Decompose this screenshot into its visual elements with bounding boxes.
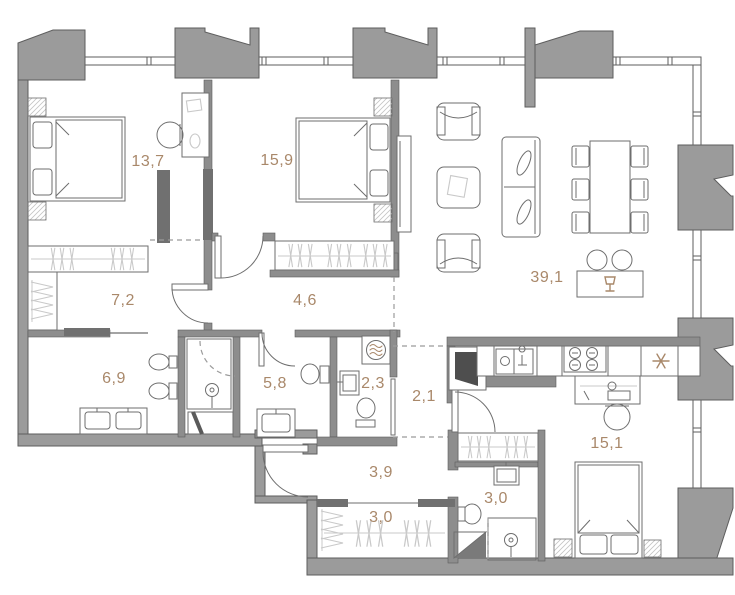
wall-bedroom3-left [538, 430, 545, 561]
room-area-label-living: 39,1 [530, 269, 563, 286]
door-leaf-entrance [263, 445, 308, 452]
window-top-3 [437, 57, 525, 65]
kitchen-furniture [449, 346, 700, 430]
door-arc-closet72 [172, 287, 208, 323]
door-arc-bedroom2 [221, 236, 263, 278]
pillow [33, 169, 52, 195]
window-right-1 [693, 65, 701, 145]
wall-laundry-left [330, 337, 337, 437]
floor-plan: 13,7 15,9 39,1 7,2 4,6 6,9 5,8 2,3 2,1 3… [0, 0, 735, 595]
pillar-top-2 [175, 28, 259, 78]
floor-plan-page: 13,7 15,9 39,1 7,2 4,6 6,9 5,8 2,3 2,1 3… [0, 0, 735, 595]
toilet-tank [356, 420, 375, 427]
bidet-tap [169, 356, 177, 368]
nightstand-icon [374, 98, 392, 116]
sliding-door-closet-right [418, 499, 455, 507]
wall-bottom-thin [317, 437, 397, 446]
bottom-wall-lower [307, 558, 733, 575]
room-area-label-bedroom-3: 15,1 [590, 435, 623, 452]
nightstand-icon [28, 98, 46, 116]
pillow [580, 535, 607, 554]
bathroom-1-fixtures [80, 354, 177, 434]
dining-table-icon [590, 141, 630, 233]
dining-chair-icon [572, 146, 589, 167]
nightstand-icon [374, 204, 392, 222]
dining-chair-icon [631, 179, 648, 200]
toilet-tank [458, 507, 465, 521]
clothes-side-icon [321, 509, 343, 551]
nightstand-icon [28, 202, 46, 220]
bathroom-2-fixtures [187, 339, 329, 437]
tv-panel-icon [397, 136, 411, 232]
bar-stool-icon [587, 250, 607, 270]
dining-chair-icon [572, 212, 589, 233]
pillar-right-1 [678, 145, 733, 230]
pillow [370, 124, 388, 150]
door-leaf-bedroom3 [452, 390, 458, 432]
dining-chair-icon [631, 212, 648, 233]
shower-head-icon [505, 534, 518, 547]
bidet-icon [149, 354, 169, 370]
sliding-door-bathroom-1 [64, 328, 110, 336]
door-arc-bathroom2 [262, 333, 295, 366]
bar-stool-icon [612, 250, 632, 270]
shower-door-arc [200, 341, 235, 376]
toilet-tank [320, 366, 329, 383]
nightstand-icon [554, 539, 572, 557]
wall-bath-top-left [178, 330, 262, 337]
pocket-door-panel-right [203, 169, 213, 240]
desk-chair-icon [604, 404, 630, 430]
door-arc-entrance [263, 452, 308, 497]
door-arc-bedroom3 [455, 392, 495, 432]
room-area-label-bathroom-2: 5,8 [263, 375, 287, 392]
room-area-label-bedroom-1: 13,7 [131, 153, 164, 170]
coffee-table-icon [437, 167, 480, 208]
nightstand-icon [644, 540, 661, 557]
window-top-2 [259, 57, 353, 65]
wall-stub-bedroom2-right [263, 233, 275, 241]
room-area-label-bathroom-1: 6,9 [102, 370, 126, 387]
dining-chair-icon [631, 146, 648, 167]
pillar-top-3 [353, 28, 437, 78]
wall-laundry-right [390, 330, 397, 377]
bottom-wall-upper-left [18, 434, 262, 446]
pillow [611, 535, 638, 554]
wall-under-wardrobe [270, 270, 399, 277]
bedroom-2-furniture [275, 98, 411, 270]
sliding-door-closet-left [317, 499, 348, 507]
shower-head-center [509, 538, 513, 542]
toilet-icon [463, 504, 481, 524]
pocket-door-panel-left [157, 170, 170, 243]
pillar-top-4 [535, 31, 613, 78]
room-area-label-corridor-1: 2,1 [412, 388, 436, 405]
room-area-label-laundry: 2,3 [361, 375, 385, 392]
bedroom-1-furniture [28, 93, 209, 220]
pillar-top-1 [18, 30, 85, 80]
closet-left-wall [307, 500, 317, 558]
left-exterior-wall [18, 80, 28, 446]
window-right-2 [693, 230, 701, 318]
wall-kitchen-top [447, 337, 700, 346]
shower-stall-icon [187, 339, 231, 409]
pillow [33, 122, 52, 148]
toilet-icon [301, 364, 319, 384]
closet-72-furniture [28, 246, 148, 330]
room-area-label-closet: 3,0 [369, 509, 393, 526]
toilet-icon [357, 398, 375, 418]
desk-chair-icon [157, 122, 183, 148]
room-area-label-corridor-2: 3,9 [369, 464, 393, 481]
shower-head-center [210, 388, 214, 392]
window-top-1 [85, 57, 175, 65]
door-leaf-bedroom2 [215, 236, 221, 278]
door-leaf-laundry [391, 379, 395, 435]
room-area-label-walk-in-closet: 7,2 [111, 292, 135, 309]
shower-head-icon [206, 384, 219, 397]
room-area-label-hallway: 4,6 [293, 292, 317, 309]
shower-stall-icon [488, 518, 536, 560]
door-leaf-bathroom2 [259, 333, 264, 366]
room-area-label-bedroom-2: 15,9 [260, 152, 293, 169]
toilet-tank [169, 383, 177, 399]
window-top-4 [613, 57, 701, 65]
window-right-3 [693, 400, 701, 488]
wall-shower-left [178, 337, 185, 437]
bedroom-3-furniture [554, 462, 661, 558]
pillar-top-4-column [525, 28, 535, 107]
armchair-icon [437, 103, 480, 140]
wall-shower-right [233, 337, 240, 437]
room-area-label-bathroom-3: 3,0 [484, 490, 508, 507]
dining-chair-icon [572, 179, 589, 200]
living-room-furniture [437, 103, 648, 297]
pillow [370, 170, 388, 196]
toilet-icon [149, 383, 169, 399]
door-leaf-closet72 [172, 284, 208, 290]
